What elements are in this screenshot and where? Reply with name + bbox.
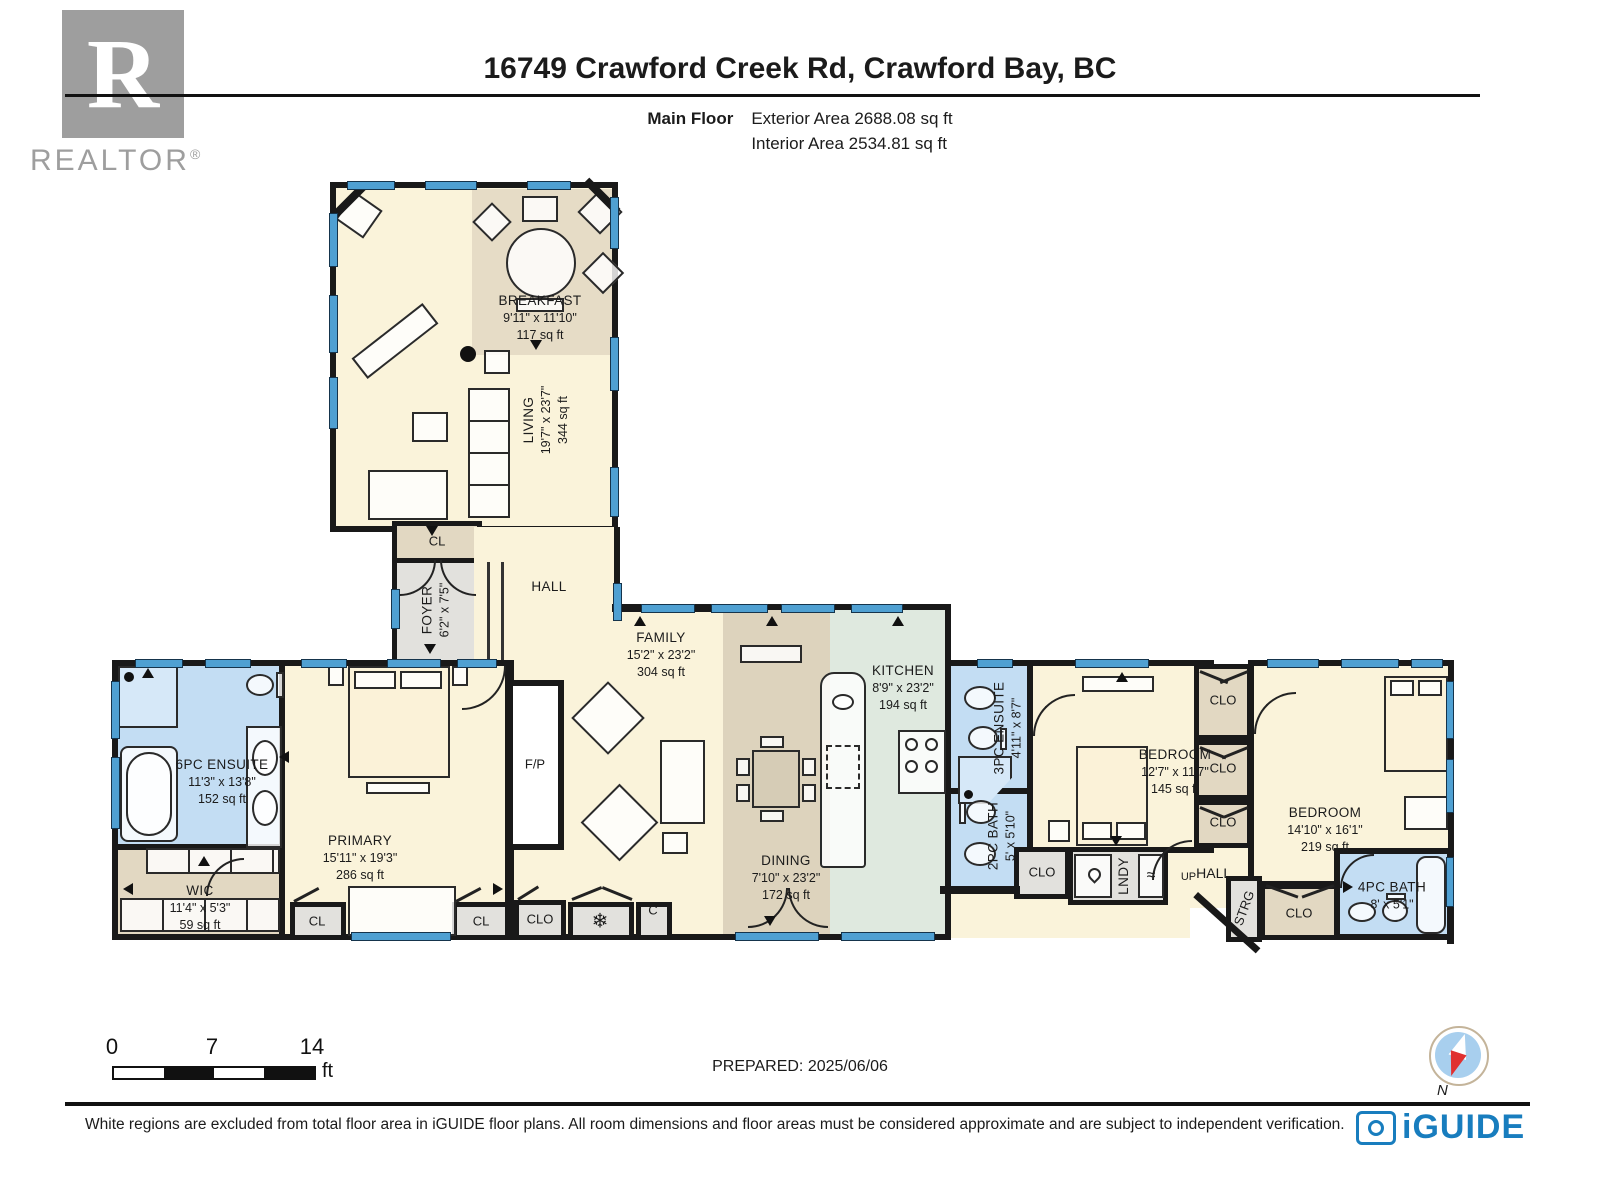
nightstand [328,666,344,686]
window [614,584,621,620]
window [352,933,450,940]
toilet [246,674,274,696]
room-label-4pc-bath: 4PC BATH8' x 5'1" [1358,878,1426,913]
window [852,605,902,612]
door-arrow-icon [493,883,503,895]
family-left-wall [505,662,513,940]
room-label-2pc-bath: 2PC BATH5' x 5'10" [984,802,1019,870]
door-arrow-icon [764,916,776,926]
chair [736,758,750,776]
iguide-camera-icon [1356,1111,1396,1145]
sofa [660,740,705,824]
page-title: 16749 Crawford Creek Rd, Crawford Bay, B… [0,52,1600,86]
shower-head [124,672,134,682]
door-arrow-icon [1110,836,1122,846]
bridge-bottom-wall [940,886,1020,894]
window [1447,760,1453,812]
bookshelf [468,388,510,518]
exterior-area: Exterior Area 2688.08 sq ft [751,106,952,131]
door-arrow-icon [1343,881,1353,893]
burner [905,738,918,751]
window [611,198,618,248]
room-label-family: FAMILY15'2" x 23'2"304 sq ft [627,629,696,681]
breakfast-table [506,228,576,298]
compass-needle [1429,1026,1487,1084]
floor-label: Main Floor [647,106,733,156]
interior-area: Interior Area 2534.81 sq ft [751,131,952,156]
c-label: C [648,903,657,918]
room-label-kitchen: KITCHEN8'9" x 23'2"194 sq ft [872,662,934,714]
window [1268,660,1318,667]
dresser [1404,796,1448,830]
shower-head [964,790,973,799]
window [302,660,346,667]
clo-label: CLO [1210,815,1237,830]
hutch [740,645,802,663]
freezer-icon: ❄ [592,909,609,934]
pillow [400,671,442,689]
door-arrow-icon [142,668,154,678]
room-label-laundry: LNDY [1115,857,1133,895]
cl-label: CL [429,534,446,549]
window [1447,682,1453,738]
window [112,758,119,828]
window [642,605,694,612]
window [736,933,818,940]
dining-table [752,750,800,808]
chair [522,196,558,222]
cl-label: CL [473,914,490,929]
room-label-foyer: FOYER6'2" x 7'5" [418,583,453,638]
side-table [662,832,688,854]
room-label-hall: HALL [531,578,566,596]
window [348,182,394,189]
clo-label: CLO [1210,693,1237,708]
window [330,378,337,428]
room-label-6pc-ensuite: 6PC ENSUITE11'3" x 13'8"152 sq ft [176,756,269,808]
entry-step-line [487,562,490,660]
compass-needle-red [1429,1026,1487,1084]
chair [760,810,784,822]
floor-summary: Main Floor Exterior Area 2688.08 sq ft I… [0,106,1600,156]
chair [736,784,750,802]
door-arrow-icon [892,616,904,626]
window [330,214,337,266]
window [1342,660,1398,667]
pillow [1390,680,1414,696]
compass-icon [1429,1026,1489,1086]
clo-label: CLO [527,912,554,927]
uphall-label: UPHALL [1181,865,1231,881]
nightstand [1048,820,1070,842]
window [458,660,496,667]
door-arrow-icon [279,751,289,763]
window [782,605,834,612]
door-arrow-icon [424,644,436,654]
window [712,605,767,612]
pillow [1082,822,1112,840]
window [528,182,570,189]
window [112,682,119,738]
door-arrow-icon [766,616,778,626]
dishwasher [826,745,860,789]
window [842,933,934,940]
scale-7: 7 [206,1034,218,1060]
closet-shelf [146,848,280,874]
pillow [354,671,396,689]
window [136,660,182,667]
pillow [1418,680,1442,696]
title-rule [65,94,1480,97]
window [611,338,618,390]
dryer-icon: ≈ [1147,867,1156,885]
window [1447,858,1453,906]
room-label-living: LIVING19'7" x 23'7"344 sq ft [520,386,572,455]
window [611,468,618,516]
window [392,590,399,628]
scale-0: 0 [106,1034,118,1060]
window [1076,660,1148,667]
chair [802,758,816,776]
window [206,660,250,667]
sink [832,694,854,710]
sofa [368,470,448,520]
up-label: UP [1181,871,1196,883]
iguide-wordmark: iGUIDE [1402,1108,1525,1147]
room-label-bedroom1: BEDROOM12'7" x 11'7"145 sq ft [1139,746,1212,798]
column-dot [460,346,476,362]
sofa [348,886,456,936]
toilet-tank [276,672,284,698]
room-label-primary: PRIMARY15'11" x 19'3"286 sq ft [323,832,398,884]
scale-14: 14 [300,1034,324,1060]
prepared-date: PREPARED: 2025/06/06 [0,1058,1600,1076]
door-arrow-icon [123,883,133,895]
window [426,182,476,189]
iguide-logo: iGUIDE [1356,1108,1525,1147]
burner [925,738,938,751]
disclaimer-text: White regions are excluded from total fl… [85,1116,1525,1134]
fireplace-label: F/P [525,757,545,772]
door-arrow-icon [634,616,646,626]
room-label-bedroom2: BEDROOM14'10" x 16'1"219 sq ft [1287,804,1363,856]
floor-plan-page: R REALTOR® 16749 Crawford Creek Rd, Craw… [0,0,1600,1200]
clo-label: CLO [1029,865,1056,880]
footer-rule [65,1102,1530,1106]
clo-label: CLO [1286,906,1313,921]
burner [925,760,938,773]
window [1412,660,1442,667]
window [388,660,440,667]
chair [802,784,816,802]
room-label-breakfast: BREAKFAST9'11" x 11'10"117 sq ft [498,292,581,344]
side-table [484,350,510,374]
bench [366,782,430,794]
window [978,660,1012,667]
north-label: N [1437,1082,1448,1099]
window [330,296,337,352]
cl-label: CL [309,914,326,929]
entry-step-line [501,562,504,660]
bathtub-basin [126,752,172,836]
chair [760,736,784,748]
door-arrow-icon [1116,672,1128,682]
clo-label: CLO [1210,761,1237,776]
room-label-dining: DINING7'10" x 23'2"172 sq ft [752,852,821,904]
room-label-3pc-ensuite: 3PC ENSUITE4'11" x 8'7" [990,682,1025,775]
door-arrow-icon [198,856,210,866]
hall2-label: HALL [1196,865,1231,881]
toilet-tank [959,802,966,824]
cabinet [412,412,448,442]
burner [905,760,918,773]
room-label-wic: WIC11'4" x 5'3"59 sq ft [170,882,231,934]
